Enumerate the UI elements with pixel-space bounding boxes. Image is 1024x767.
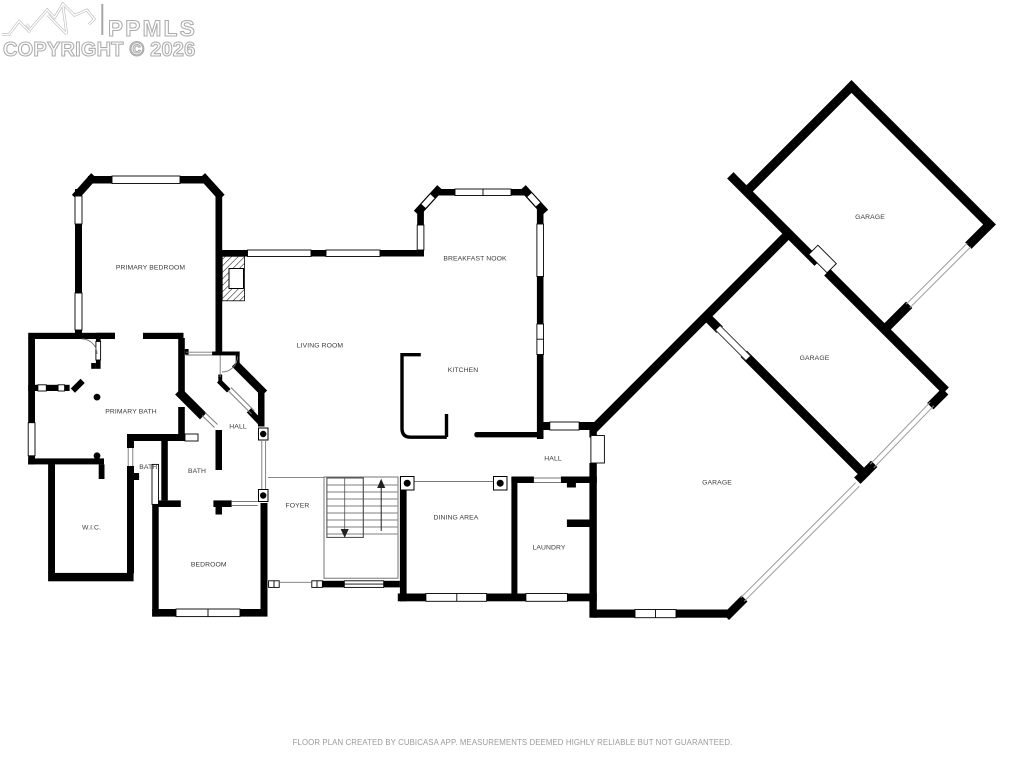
svg-text:GARAGE: GARAGE xyxy=(855,214,885,221)
svg-text:BATH: BATH xyxy=(139,464,157,471)
svg-text:KITCHEN: KITCHEN xyxy=(448,367,479,374)
svg-text:FLOOR PLAN CREATED BY CUBICASA: FLOOR PLAN CREATED BY CUBICASA APP. MEAS… xyxy=(293,738,733,747)
svg-text:PRIMARY BEDROOM: PRIMARY BEDROOM xyxy=(116,265,185,272)
svg-text:PPMLS: PPMLS xyxy=(108,16,197,41)
svg-text:GARAGE: GARAGE xyxy=(800,355,830,362)
svg-text:PRIMARY BATH: PRIMARY BATH xyxy=(105,409,156,416)
svg-text:BATH: BATH xyxy=(188,468,206,475)
svg-text:HALL: HALL xyxy=(544,456,562,463)
svg-text:BEDROOM: BEDROOM xyxy=(191,562,227,569)
svg-text:HALL: HALL xyxy=(229,424,247,431)
svg-text:BREAKFAST NOOK: BREAKFAST NOOK xyxy=(443,256,507,263)
svg-text:DINING AREA: DINING AREA xyxy=(434,515,479,522)
svg-text:LAUNDRY: LAUNDRY xyxy=(532,545,565,552)
svg-text:COPYRIGHT © 2026: COPYRIGHT © 2026 xyxy=(3,39,195,61)
svg-text:GARAGE: GARAGE xyxy=(702,480,732,487)
svg-text:W.I.C.: W.I.C. xyxy=(82,525,101,532)
svg-text:FOYER: FOYER xyxy=(286,503,310,510)
svg-text:LIVING ROOM: LIVING ROOM xyxy=(297,343,344,350)
